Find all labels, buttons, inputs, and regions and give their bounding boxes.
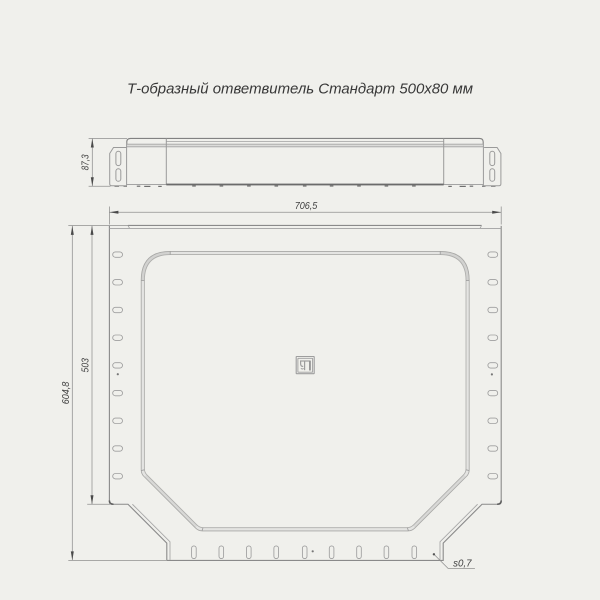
- svg-text:87,3: 87,3: [80, 154, 91, 170]
- svg-text:Т-образный ответвитель Стандар: Т-образный ответвитель Стандарт 500х80 м…: [127, 82, 473, 98]
- svg-text:503: 503: [80, 358, 91, 373]
- svg-text:604,8: 604,8: [61, 381, 72, 404]
- svg-text:s0,7: s0,7: [453, 559, 472, 570]
- svg-text:706,5: 706,5: [295, 201, 318, 212]
